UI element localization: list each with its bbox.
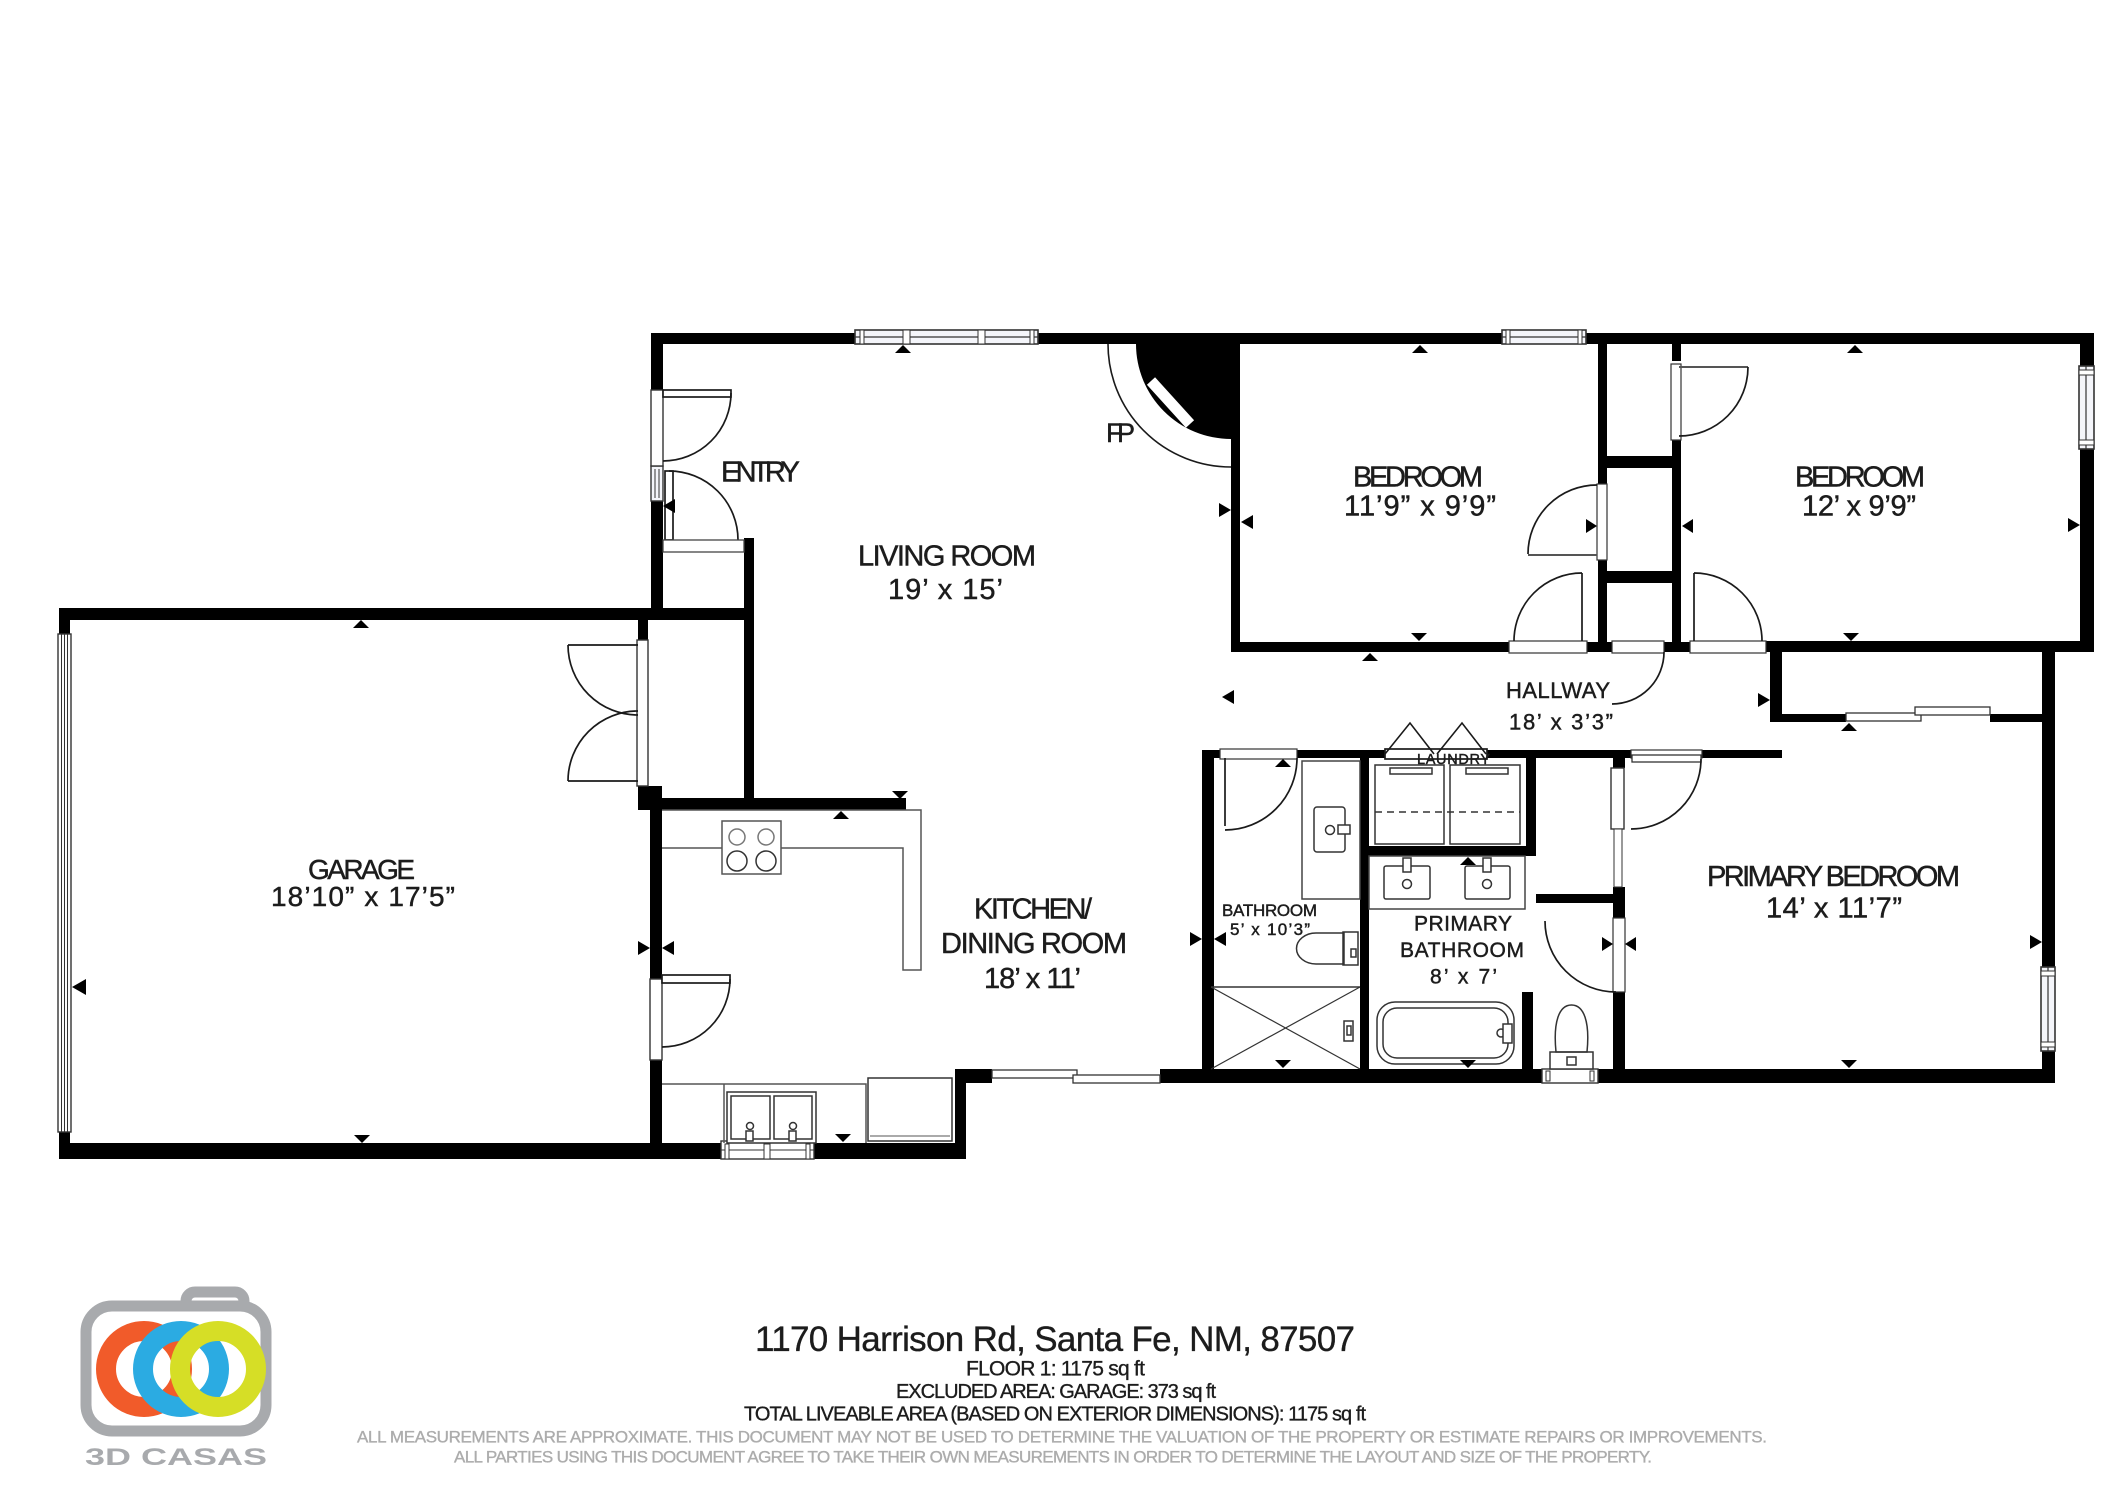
svg-text:BEDROOM: BEDROOM bbox=[1795, 462, 1925, 494]
svg-text:FLOOR 1: 1175 sq ft: FLOOR 1: 1175 sq ft bbox=[966, 1357, 1145, 1380]
svg-text:EXCLUDED AREA: GARAGE: 373 sq: EXCLUDED AREA: GARAGE: 373 sq ft bbox=[896, 1381, 1216, 1403]
svg-text:BATHROOM: BATHROOM bbox=[1222, 901, 1317, 920]
svg-text:5’ x 10’3”: 5’ x 10’3” bbox=[1230, 920, 1310, 939]
svg-text:ALL MEASUREMENTS ARE APPROXIMA: ALL MEASUREMENTS ARE APPROXIMATE. THIS D… bbox=[357, 1428, 1767, 1447]
svg-text:ENTRY: ENTRY bbox=[721, 457, 800, 489]
svg-text:HALLWAY: HALLWAY bbox=[1506, 678, 1610, 703]
svg-text:PRIMARY: PRIMARY bbox=[1414, 913, 1512, 936]
svg-text:8’ x 7’: 8’ x 7’ bbox=[1430, 966, 1497, 989]
svg-text:DINING ROOM: DINING ROOM bbox=[941, 928, 1127, 960]
svg-text:BATHROOM: BATHROOM bbox=[1400, 939, 1524, 962]
svg-text:FP: FP bbox=[1106, 418, 1135, 448]
svg-text:LIVING ROOM: LIVING ROOM bbox=[858, 541, 1036, 573]
svg-text:11’9” x 9’9”: 11’9” x 9’9” bbox=[1344, 491, 1496, 523]
svg-text:18’ x 3’3”: 18’ x 3’3” bbox=[1509, 709, 1613, 734]
svg-text:19’ x 15’: 19’ x 15’ bbox=[888, 574, 1003, 606]
svg-text:18’ x 11’: 18’ x 11’ bbox=[984, 963, 1081, 995]
svg-text:PRIMARY BEDROOM: PRIMARY BEDROOM bbox=[1707, 861, 1960, 893]
svg-text:14’ x 11’7”: 14’ x 11’7” bbox=[1766, 892, 1902, 924]
svg-text:18’10” x 17’5”: 18’10” x 17’5” bbox=[271, 881, 455, 912]
svg-text:12’ x 9’9”: 12’ x 9’9” bbox=[1802, 491, 1916, 523]
svg-text:LAUNDRY: LAUNDRY bbox=[1417, 752, 1490, 768]
svg-text:BEDROOM: BEDROOM bbox=[1353, 462, 1483, 494]
svg-text:KITCHEN/: KITCHEN/ bbox=[974, 894, 1093, 926]
svg-text:ALL PARTIES USING THIS DOCUMEN: ALL PARTIES USING THIS DOCUMENT AGREE TO… bbox=[454, 1448, 1652, 1467]
svg-text:3D CASAS: 3D CASAS bbox=[85, 1444, 267, 1471]
svg-text:TOTAL LIVEABLE AREA (BASED ON: TOTAL LIVEABLE AREA (BASED ON EXTERIOR D… bbox=[744, 1404, 1366, 1426]
svg-text:1170 Harrison Rd, Santa Fe, NM: 1170 Harrison Rd, Santa Fe, NM, 87507 bbox=[755, 1320, 1355, 1359]
